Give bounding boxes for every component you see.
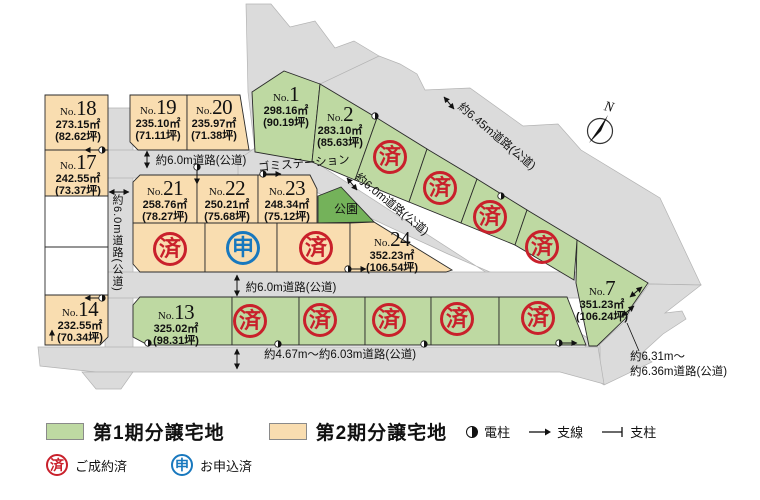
sold-stamp: 済: [473, 200, 507, 234]
road-label-bottom: 約4.67m～約6.03m道路(公道): [264, 346, 416, 362]
sold-label: ご成約済: [75, 456, 127, 475]
road-label-top: 約6.0m道路(公道): [156, 152, 247, 168]
lot-label-no20: No.20 235.97㎡ (71.38坪): [191, 97, 237, 142]
sold-stamp-legend: 済: [46, 454, 68, 476]
lot-label-no14: No.14 232.55㎡ (70.34坪): [57, 299, 103, 344]
sold-stamp: 済: [440, 302, 474, 336]
sold-stamp: 済: [153, 232, 187, 266]
lot-label-no7: No.7 351.23㎡ (106.24坪): [576, 278, 628, 323]
road-label-left-vertical: 約6.0m道路(公道): [109, 194, 125, 292]
sold-stamp: 済: [373, 140, 407, 174]
sold-stamp: 済: [521, 301, 555, 335]
legend-row-stamps: 済 ご成約済 申 お申込済: [46, 454, 252, 476]
lot-label-no1: No.1 298.16㎡ (90.19坪): [263, 84, 309, 129]
lot-label-no18: No.18 273.15㎡ (82.62坪): [55, 98, 101, 143]
lot-label-no24: No.24 352.23㎡ (106.54坪): [366, 229, 418, 274]
legend-post: 支柱: [601, 422, 656, 441]
compass: [588, 115, 613, 144]
applied-label: お申込済: [200, 456, 252, 475]
support-post-icon: [601, 426, 625, 438]
guy-wire-arrow-icon: [528, 427, 552, 437]
pole-no2-top: [372, 113, 378, 119]
lot-label-no17: No.17 242.55㎡ (73.37坪): [55, 152, 101, 197]
road-middle-horizontal: [105, 272, 598, 298]
sold-stamp: 済: [525, 230, 559, 264]
lot-label-no19: No.19 235.10㎡ (71.11坪): [135, 97, 180, 142]
phase2-swatch: [269, 423, 307, 440]
sold-stamp: 済: [303, 303, 337, 337]
pole-bottomrow-2: [421, 341, 427, 347]
pole-no13-bottom: [145, 340, 151, 346]
subdivision-map-page: No.18 273.15㎡ (82.62坪) No.17 242.55㎡ (73…: [0, 0, 760, 500]
legend-wire: 支線: [528, 422, 583, 441]
sold-stamp: 済: [233, 304, 267, 338]
phase1-label: 第1期分譲宅地: [93, 418, 225, 445]
lot-label-no13: No.13 325.02㎡ (98.31坪): [153, 302, 199, 347]
phase2-label: 第2期分譲宅地: [316, 418, 448, 445]
utility-pole-icon: [465, 425, 479, 439]
legend-pole: 電柱: [465, 422, 510, 441]
park-label: 公園: [334, 200, 358, 217]
road-label-right: 約6.31m～ 約6.36m道路(公道): [630, 350, 727, 380]
sold-stamp: 済: [299, 231, 333, 265]
lot-white-upper: [45, 196, 108, 247]
lot-label-no21: No.21 258.76㎡ (78.27坪): [142, 178, 188, 223]
legend-row-phases: 第1期分譲宅地 第2期分譲宅地 電柱 支線: [46, 418, 656, 445]
sold-stamp: 済: [423, 171, 457, 205]
sold-stamp: 済: [372, 303, 406, 337]
pole-strip-middle: [498, 193, 504, 199]
road-label-middle: 約6.0m道路(公道): [246, 279, 337, 295]
lot-white-lower: [45, 247, 108, 295]
phase1-swatch: [46, 423, 84, 440]
lot-label-no22: No.22 250.21㎡ (75.68坪): [204, 178, 250, 223]
applied-stamp: 申: [226, 231, 260, 265]
lot-label-no2: No.2 283.10㎡ (85.63坪): [317, 104, 363, 149]
road-bottom-stub: [82, 372, 133, 389]
lot-label-no23: No.23 248.34㎡ (75.12坪): [264, 178, 310, 223]
applied-stamp-legend: 申: [171, 454, 193, 476]
